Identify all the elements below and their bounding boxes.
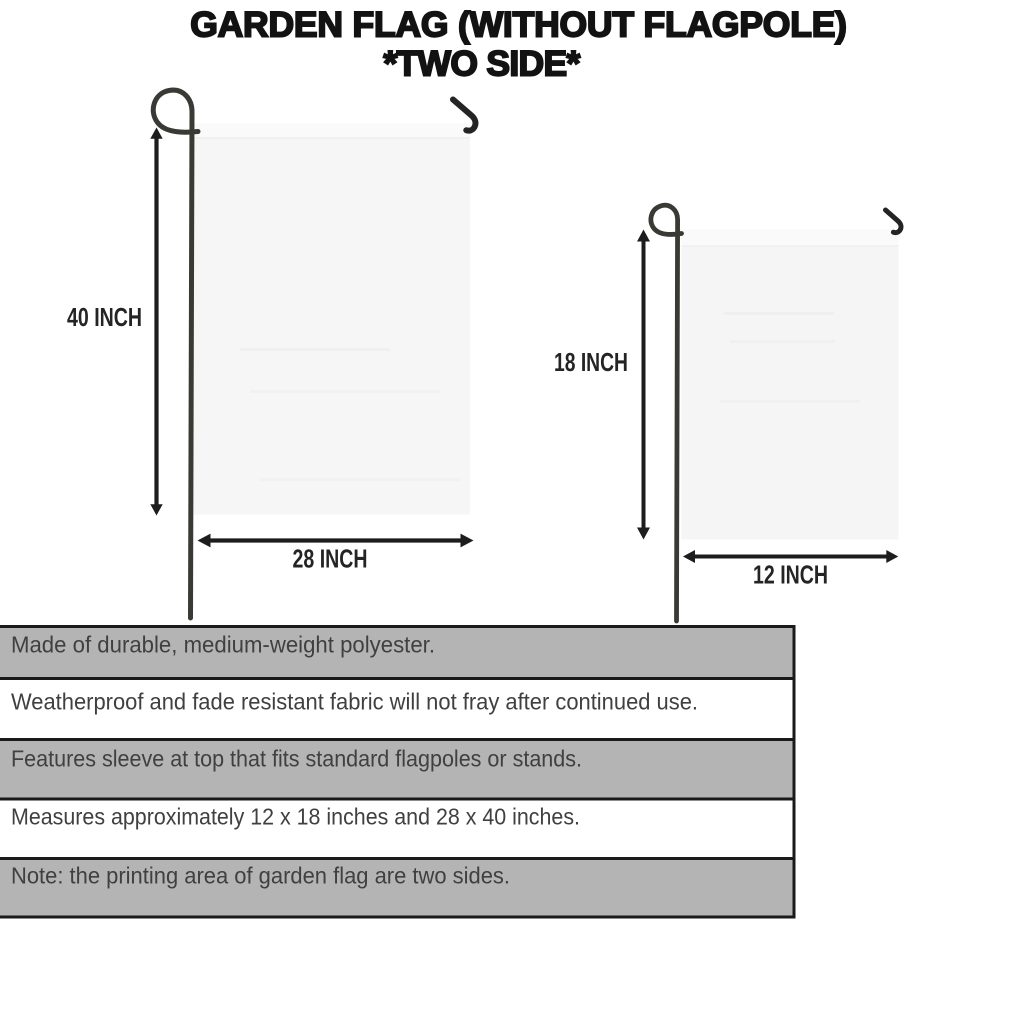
svg-text:*TWO SIDE*: *TWO SIDE*: [383, 44, 580, 84]
svg-text:12 INCH: 12 INCH: [753, 560, 828, 590]
svg-text:Note: the printing area of gar: Note: the printing area of garden flag a…: [11, 863, 510, 889]
svg-text:40 INCH: 40 INCH: [67, 302, 142, 332]
svg-text:GARDEN FLAG (WITHOUT FLAGPOLE): GARDEN FLAG (WITHOUT FLAGPOLE): [190, 5, 847, 45]
svg-text:Made of durable, medium-weight: Made of durable, medium-weight polyester…: [11, 632, 435, 658]
svg-text:Weatherproof and fade resistan: Weatherproof and fade resistant fabric w…: [11, 689, 698, 715]
svg-text:28 INCH: 28 INCH: [293, 544, 368, 574]
svg-text:18 INCH: 18 INCH: [554, 347, 628, 377]
svg-text:Measures approximately 12 x 18: Measures approximately 12 x 18 inches an…: [11, 804, 580, 830]
svg-text:Features sleeve at top that fi: Features sleeve at top that fits standar…: [11, 746, 582, 772]
